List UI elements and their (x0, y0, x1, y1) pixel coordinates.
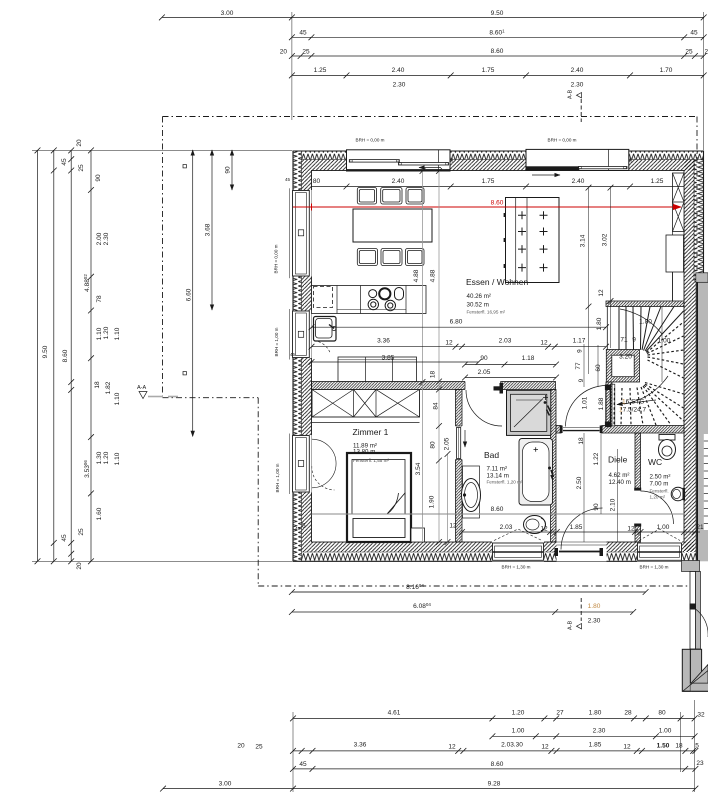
svg-text:A-B: A-B (568, 90, 574, 100)
svg-text:1.10: 1.10 (114, 452, 121, 465)
svg-text:80: 80 (313, 178, 321, 185)
svg-text:60: 60 (595, 364, 602, 372)
svg-text:30.52 m: 30.52 m (467, 302, 489, 309)
svg-text:2.40: 2.40 (572, 178, 585, 185)
svg-text:1.20: 1.20 (103, 451, 110, 464)
svg-text:1.82: 1.82 (105, 381, 112, 394)
svg-text:16 STG: 16 STG (622, 399, 644, 406)
svg-text:8.60: 8.60 (491, 761, 504, 768)
svg-text:5: 5 (302, 523, 306, 530)
svg-text:8.60: 8.60 (62, 349, 69, 362)
svg-text:2.40: 2.40 (392, 67, 405, 74)
svg-text:45: 45 (628, 157, 633, 163)
svg-text:2.30: 2.30 (588, 618, 601, 625)
svg-text:32: 32 (697, 712, 705, 719)
svg-text:90: 90 (225, 166, 232, 174)
svg-text:2.40: 2.40 (571, 67, 584, 74)
svg-text:2.00: 2.00 (96, 232, 103, 245)
svg-text:Fensterfl. 1,55 m²: Fensterfl. 1,55 m² (353, 458, 389, 463)
svg-text:3.36: 3.36 (354, 741, 367, 748)
svg-text:6.80: 6.80 (450, 319, 463, 326)
svg-text:18: 18 (94, 381, 101, 389)
svg-text:2.30: 2.30 (571, 82, 584, 89)
svg-text:3.54: 3.54 (415, 462, 422, 475)
svg-text:12: 12 (541, 743, 549, 750)
svg-text:12: 12 (627, 526, 635, 533)
svg-text:8.60: 8.60 (491, 506, 504, 513)
svg-text:1.00: 1.00 (657, 524, 670, 531)
svg-text:40.26 m²: 40.26 m² (467, 293, 491, 300)
svg-text:45: 45 (449, 157, 454, 163)
svg-text:1.17: 1.17 (573, 338, 586, 345)
svg-text:2.30: 2.30 (103, 232, 110, 245)
svg-text:1.10: 1.10 (114, 392, 121, 405)
svg-text:1.80: 1.80 (588, 603, 601, 610)
svg-text:1.00: 1.00 (658, 338, 671, 345)
svg-text:1.88: 1.88 (598, 397, 605, 410)
svg-text:1.50: 1.50 (657, 742, 670, 749)
svg-text:2.05: 2.05 (444, 437, 451, 450)
svg-text:12: 12 (445, 340, 453, 347)
svg-text:20: 20 (280, 48, 288, 55)
svg-text:9: 9 (632, 337, 636, 344)
svg-text:20: 20 (76, 139, 83, 147)
svg-text:Fensterfl. 1,20 m²: Fensterfl. 1,20 m² (487, 480, 523, 485)
svg-text:3.36: 3.36 (377, 338, 390, 345)
svg-text:1.00: 1.00 (512, 727, 525, 734)
svg-text:4.62 m²: 4.62 m² (609, 472, 630, 479)
svg-text:1.10: 1.10 (114, 327, 121, 340)
svg-text:9.50: 9.50 (491, 10, 504, 17)
svg-text:2.10: 2.10 (610, 498, 617, 511)
svg-text:BRH = 1,30 m: BRH = 1,30 m (502, 565, 531, 570)
svg-text:45: 45 (690, 29, 698, 36)
svg-text:2.03: 2.03 (499, 338, 512, 345)
svg-text:1.18: 1.18 (522, 355, 535, 362)
svg-text:1.85: 1.85 (570, 524, 583, 531)
svg-text:2.03: 2.03 (500, 524, 513, 531)
svg-text:1.60: 1.60 (96, 507, 103, 520)
svg-text:4.88: 4.88 (413, 269, 420, 282)
svg-text:78: 78 (96, 295, 103, 303)
svg-text:17.5/24.7: 17.5/24.7 (619, 407, 647, 414)
svg-text:45: 45 (295, 526, 301, 531)
svg-text:Essen / Wohnen: Essen / Wohnen (466, 277, 528, 287)
svg-text:2.30: 2.30 (593, 727, 606, 734)
svg-text:1.90: 1.90 (429, 495, 436, 508)
svg-text:2.03.30: 2.03.30 (501, 741, 523, 748)
svg-text:BRH = 1,00 m: BRH = 1,00 m (274, 327, 279, 356)
svg-text:12.40 m: 12.40 m (609, 479, 631, 486)
svg-text:Fensterfl. 16,95 m²: Fensterfl. 16,95 m² (467, 310, 506, 315)
svg-text:21: 21 (696, 524, 704, 531)
svg-text:1.80: 1.80 (639, 319, 652, 326)
svg-text:8.60: 8.60 (491, 48, 504, 55)
svg-text:1.00: 1.00 (659, 727, 672, 734)
svg-text:28: 28 (624, 710, 632, 717)
svg-text:A-B: A-B (568, 621, 574, 631)
svg-text:BRH = 0,00 m: BRH = 0,00 m (548, 138, 577, 143)
svg-text:2.50 m²: 2.50 m² (650, 474, 671, 481)
svg-text:8.60: 8.60 (491, 200, 504, 207)
svg-text:7.00 m: 7.00 m (650, 481, 669, 488)
svg-text:84: 84 (433, 402, 440, 410)
svg-text:5: 5 (695, 742, 699, 749)
svg-text:3.85: 3.85 (382, 355, 395, 362)
svg-text:20: 20 (76, 562, 83, 570)
svg-text:9: 9 (577, 349, 584, 353)
svg-text:4.61: 4.61 (388, 710, 401, 717)
svg-text:1.22: 1.22 (593, 452, 600, 465)
svg-text:9.28: 9.28 (488, 781, 501, 788)
svg-text:7.11 m²: 7.11 m² (487, 466, 508, 473)
svg-text:1.10: 1.10 (96, 327, 103, 340)
svg-text:3.20: 3.20 (619, 354, 632, 361)
svg-text:90: 90 (95, 174, 102, 182)
svg-text:1.85: 1.85 (589, 741, 602, 748)
svg-text:Fensterfl.: Fensterfl. (650, 489, 669, 494)
svg-text:1.30: 1.30 (96, 451, 103, 464)
svg-text:1.75: 1.75 (482, 67, 495, 74)
svg-text:25: 25 (78, 528, 85, 536)
svg-text:71: 71 (620, 337, 628, 344)
svg-text:45: 45 (285, 177, 291, 182)
svg-text:45: 45 (299, 761, 307, 768)
svg-text:20: 20 (237, 742, 245, 749)
svg-text:2.40: 2.40 (392, 178, 405, 185)
svg-text:1.20: 1.20 (512, 710, 525, 717)
svg-text:2.05: 2.05 (478, 369, 491, 376)
svg-text:2.30: 2.30 (393, 82, 406, 89)
svg-text:3.14: 3.14 (580, 234, 587, 247)
svg-text:3.02: 3.02 (602, 233, 609, 246)
svg-text:9.50: 9.50 (42, 345, 49, 358)
svg-text:1.80: 1.80 (596, 317, 603, 330)
svg-text:12: 12 (448, 743, 456, 750)
svg-text:1.01: 1.01 (582, 396, 589, 409)
svg-text:12: 12 (540, 526, 548, 533)
svg-text:18: 18 (430, 371, 437, 379)
svg-text:27: 27 (556, 710, 564, 717)
svg-text:1.20: 1.20 (103, 326, 110, 339)
svg-text:Diele: Diele (608, 455, 628, 465)
svg-text:90: 90 (593, 503, 600, 511)
svg-text:45: 45 (299, 29, 307, 36)
svg-text:1.25: 1.25 (651, 178, 664, 185)
svg-text:45: 45 (290, 352, 296, 357)
svg-text:Bad: Bad (484, 450, 499, 460)
svg-text:BRH = 1,30 m: BRH = 1,30 m (640, 565, 669, 570)
svg-text:2: 2 (705, 48, 708, 55)
svg-text:BRH = 0,00 m: BRH = 0,00 m (274, 244, 279, 273)
svg-text:12: 12 (540, 340, 548, 347)
svg-text:3.00: 3.00 (221, 10, 234, 17)
svg-text:80: 80 (658, 710, 666, 717)
svg-text:12: 12 (623, 743, 631, 750)
svg-text:23: 23 (696, 760, 704, 767)
svg-text:A-A: A-A (137, 385, 147, 391)
svg-text:45: 45 (61, 534, 68, 542)
svg-text:WC: WC (648, 457, 662, 467)
svg-text:25: 25 (685, 48, 693, 55)
svg-text:1.25: 1.25 (314, 67, 327, 74)
svg-text:3.68: 3.68 (205, 223, 212, 236)
svg-text:Zimmer 1: Zimmer 1 (353, 427, 389, 437)
svg-text:1.75: 1.75 (482, 178, 495, 185)
svg-text:90: 90 (480, 355, 488, 362)
svg-text:25: 25 (255, 743, 263, 750)
svg-text:3.00: 3.00 (219, 781, 232, 788)
svg-text:4.88: 4.88 (430, 269, 437, 282)
svg-text:1.80: 1.80 (589, 710, 602, 717)
svg-text:12: 12 (449, 523, 457, 530)
svg-text:BRH = 1,00 m: BRH = 1,00 m (275, 463, 280, 492)
svg-text:45: 45 (61, 158, 68, 166)
svg-text:77: 77 (575, 362, 582, 370)
svg-text:1,20 m²: 1,20 m² (650, 495, 666, 500)
svg-text:25: 25 (78, 164, 85, 172)
svg-text:80: 80 (430, 441, 437, 449)
svg-text:9: 9 (578, 378, 585, 382)
svg-text:6.60: 6.60 (186, 288, 193, 301)
svg-text:12: 12 (598, 289, 605, 297)
svg-text:2.50: 2.50 (576, 476, 583, 489)
svg-text:18: 18 (675, 742, 683, 749)
svg-text:13.14 m: 13.14 m (487, 473, 509, 480)
svg-text:1.70: 1.70 (660, 67, 673, 74)
svg-text:25: 25 (302, 48, 310, 55)
svg-text:BRH = 0,00 m: BRH = 0,00 m (356, 138, 385, 143)
